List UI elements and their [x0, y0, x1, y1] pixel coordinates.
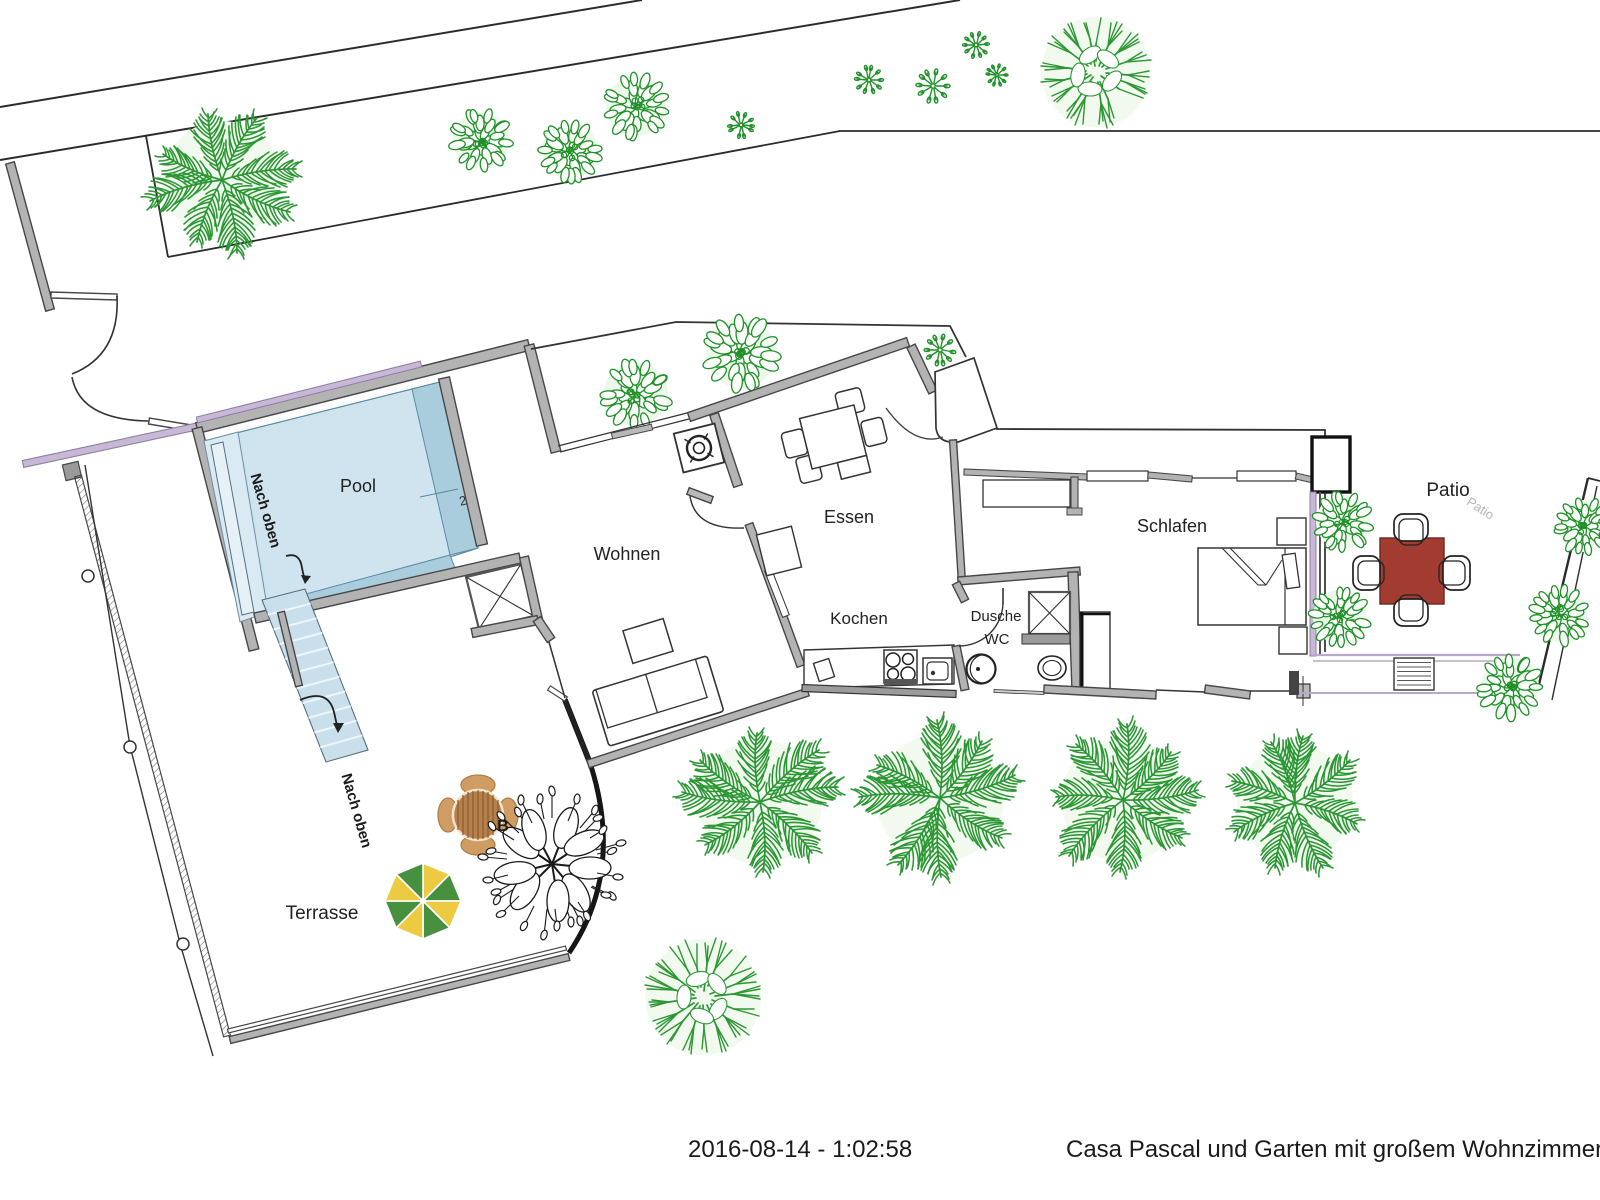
svg-text:2016-08-14 - 1:02:58: 2016-08-14 - 1:02:58	[688, 1136, 912, 1163]
svg-text:Casa Pascal und Garten mit gro: Casa Pascal und Garten mit großem Wohnzi…	[1066, 1136, 1600, 1163]
svg-text:Wohnen: Wohnen	[594, 544, 661, 564]
svg-text:Patio: Patio	[1426, 480, 1469, 501]
svg-text:Dusche: Dusche	[971, 608, 1022, 625]
svg-text:Essen: Essen	[824, 507, 874, 527]
svg-text:Schlafen: Schlafen	[1137, 516, 1207, 536]
svg-text:B: B	[497, 818, 509, 835]
svg-text:Pool: Pool	[340, 476, 376, 496]
svg-text:WC: WC	[985, 631, 1010, 648]
svg-text:Terrasse: Terrasse	[286, 903, 359, 924]
svg-text:Kochen: Kochen	[830, 609, 888, 628]
